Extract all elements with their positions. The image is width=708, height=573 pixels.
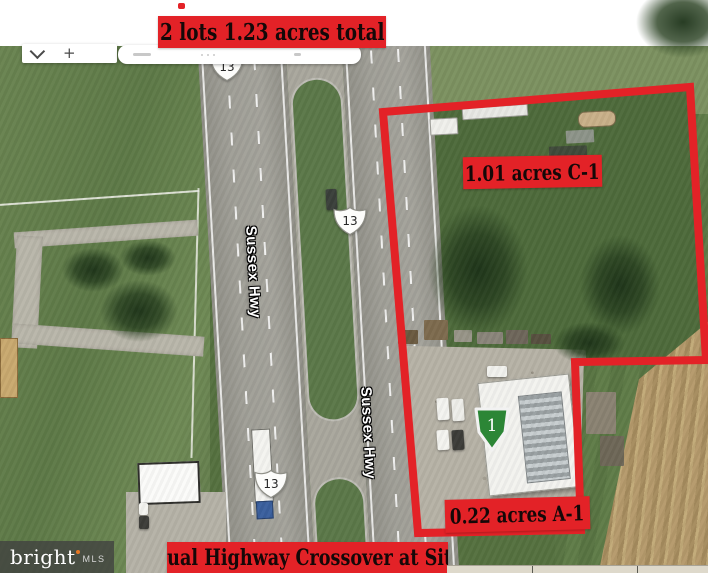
plus-icon[interactable]: + [63,46,76,61]
brightmls-watermark: bright MLS [0,541,114,573]
brand-text: bright [10,545,75,569]
map-marker-pin[interactable]: 1 [471,404,513,454]
faded-text-mark [207,54,209,56]
faded-text-mark [201,54,203,56]
chevron-down-icon[interactable] [30,44,46,60]
banner-total-acreage: 2 lots 1.23 acres total [158,16,386,48]
table-divider [532,566,533,573]
faded-text-mark [133,53,151,56]
cropped-table-edge [447,565,708,573]
faded-text-mark [294,53,301,56]
property-boundary-outline [0,0,708,573]
map-toolbar-fragment[interactable]: + [22,44,117,63]
brand-suffix: MLS [82,554,105,564]
marker-number: 1 [487,416,498,436]
banner-lot-c1: 1.01 acres C-1 [463,155,603,189]
table-divider [637,566,638,573]
banner-text: Dual Highway Crossover at Site [167,545,448,571]
faded-text-mark [213,54,215,56]
red-dot [178,3,185,9]
banner-text: 0.22 acres A-1 [450,500,585,529]
listing-photo-map: Sussex Hwy Sussex Hwy 13 13 13 + 2 lots … [0,0,708,573]
banner-text: 2 lots 1.23 acres total [160,19,384,46]
spark-icon [76,550,80,554]
banner-lot-a1: 0.22 acres A-1 [445,496,591,533]
banner-crossover: Dual Highway Crossover at Site [167,542,448,573]
banner-text: 1.01 acres C-1 [465,158,600,185]
